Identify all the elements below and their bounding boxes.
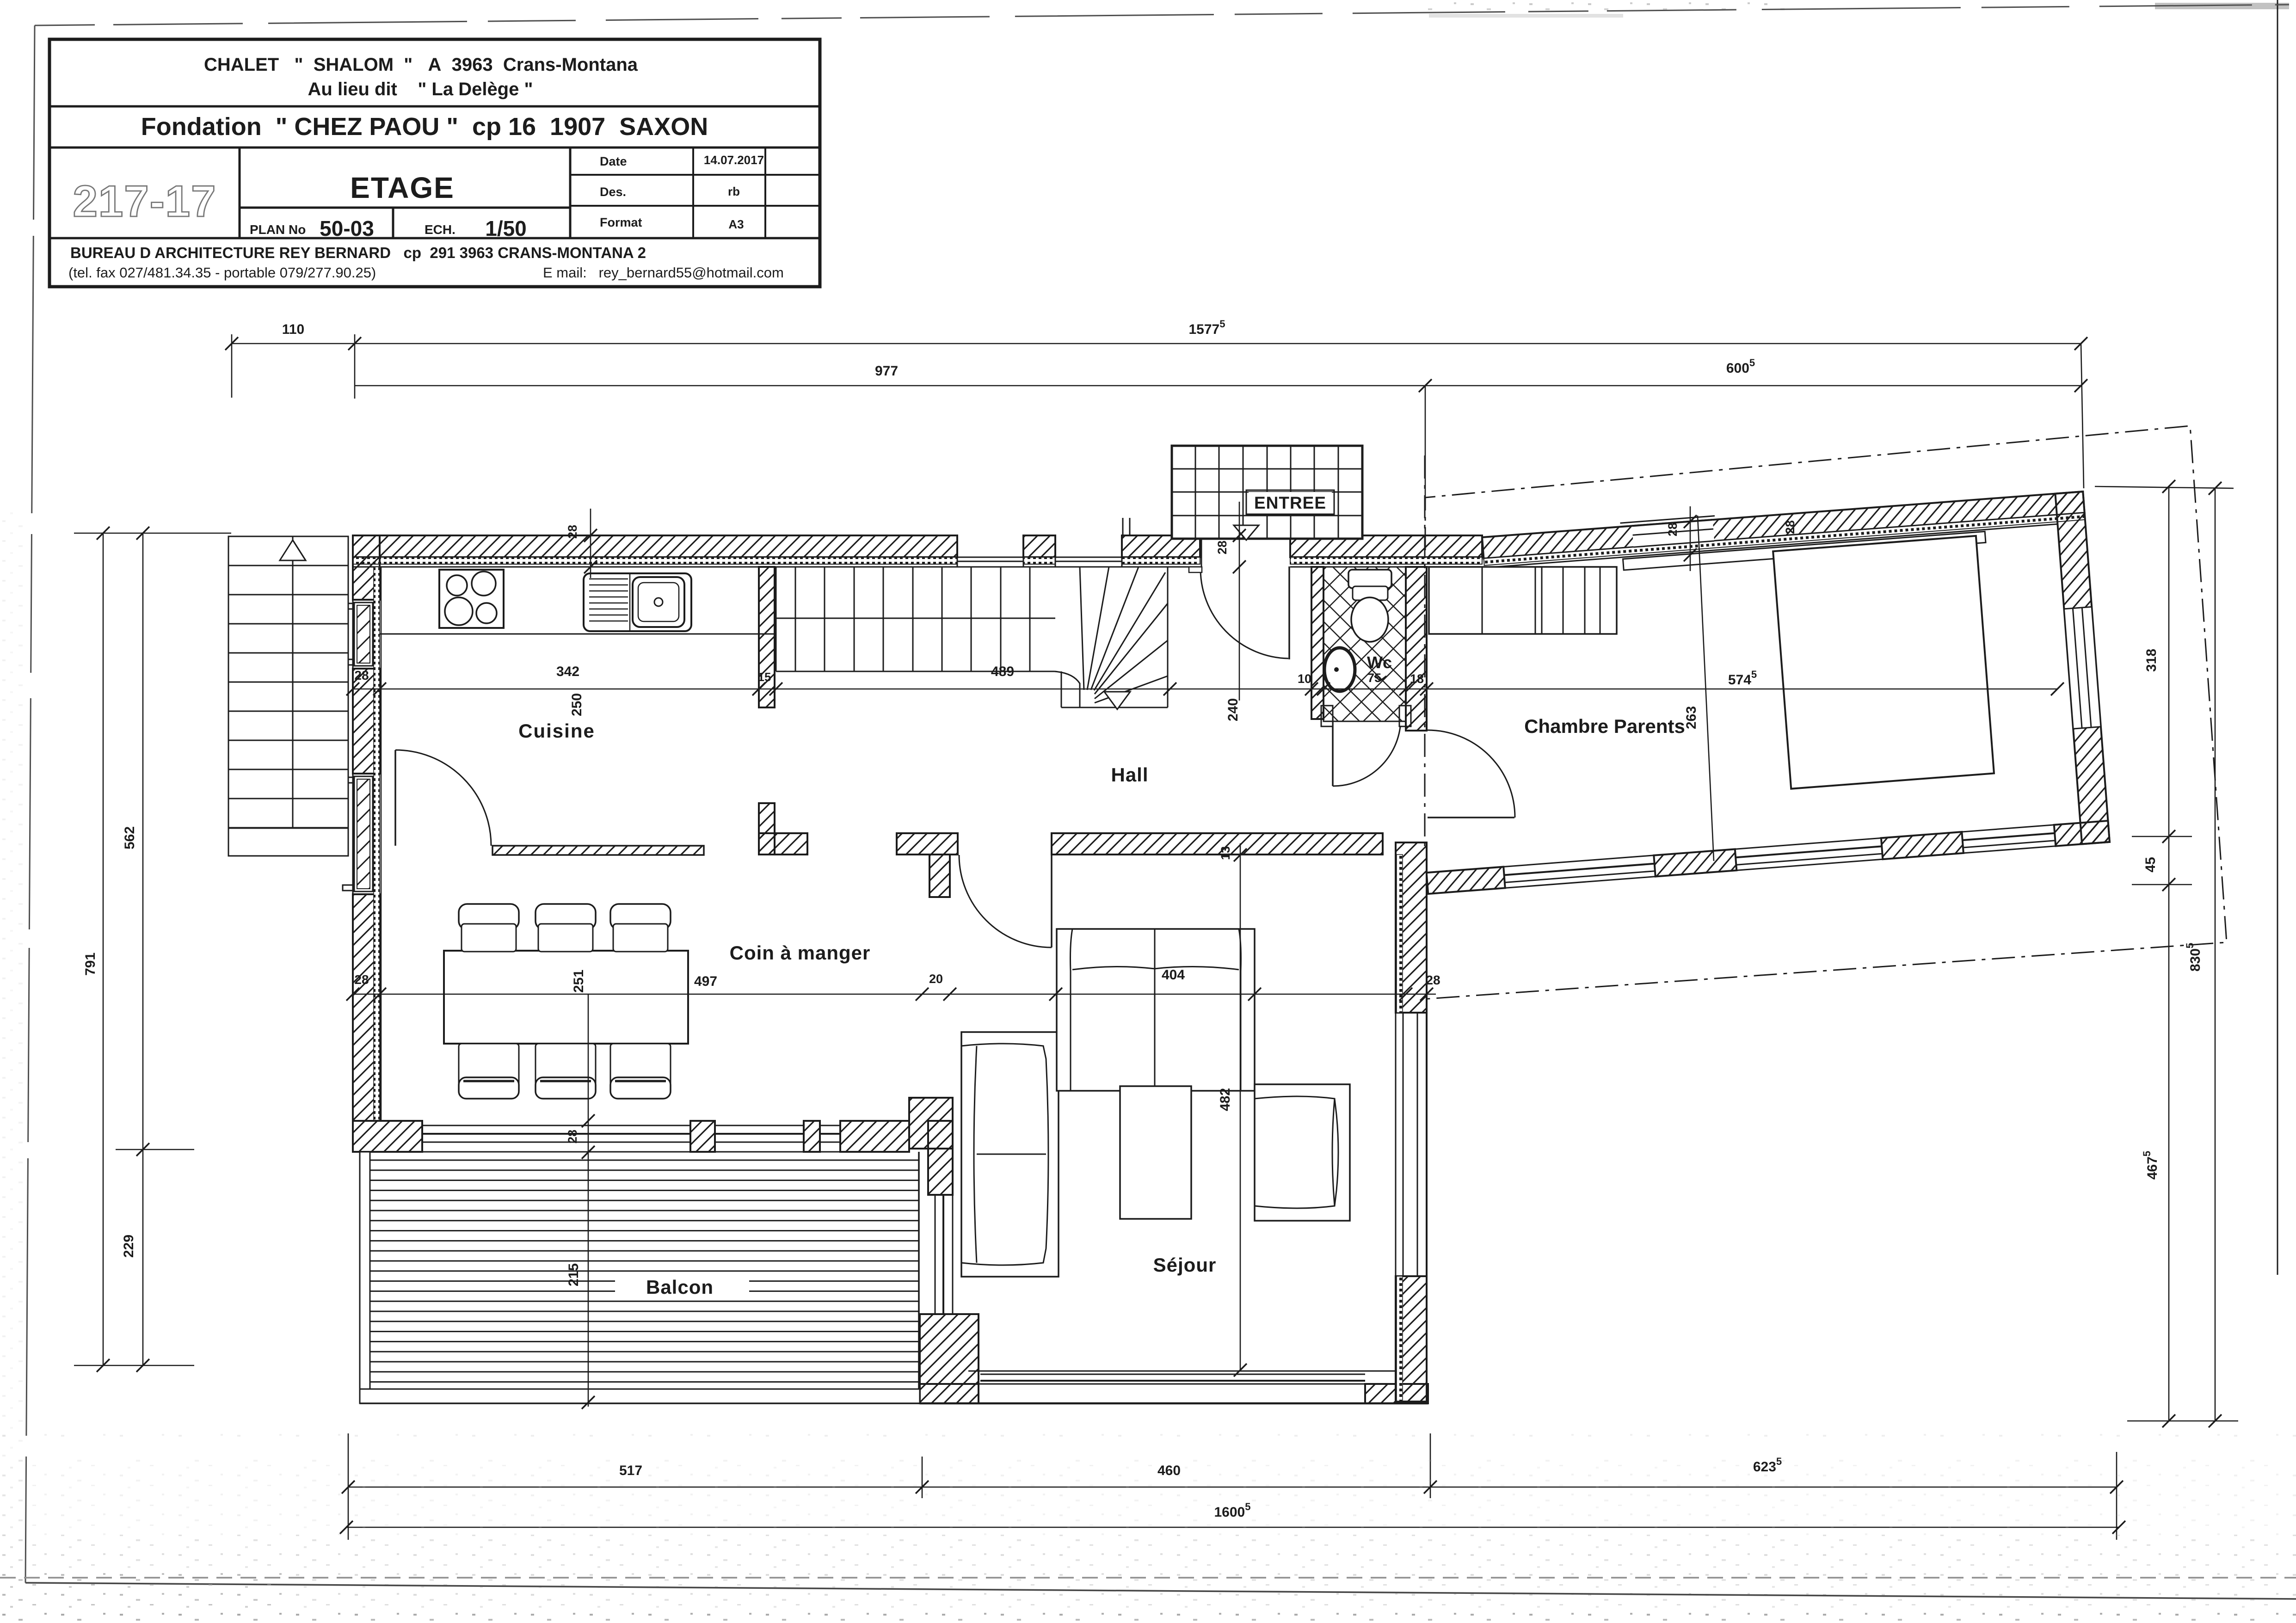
svg-text:110: 110 (282, 322, 304, 337)
svg-text:489: 489 (991, 664, 1014, 679)
svg-text:28: 28 (566, 1130, 579, 1143)
svg-text:10: 10 (1298, 672, 1311, 686)
svg-text:50-03: 50-03 (320, 216, 374, 240)
svg-text:250: 250 (569, 693, 585, 716)
svg-text:251: 251 (571, 970, 586, 993)
svg-text:1/50: 1/50 (485, 216, 527, 240)
svg-text:562: 562 (122, 826, 137, 849)
svg-text:Cuisine: Cuisine (518, 720, 595, 742)
svg-text:Wc: Wc (1367, 653, 1392, 672)
svg-text:18: 18 (1410, 672, 1424, 686)
svg-text:Chambre Parents: Chambre Parents (1524, 715, 1685, 737)
svg-text:28: 28 (1666, 523, 1680, 536)
svg-text:791: 791 (83, 953, 98, 976)
svg-text:28: 28 (1783, 520, 1797, 534)
svg-text:13: 13 (1219, 846, 1232, 860)
svg-text:20: 20 (929, 972, 943, 986)
svg-text:482: 482 (1218, 1088, 1233, 1111)
svg-text:318: 318 (2144, 649, 2159, 672)
svg-text:Coin à manger: Coin à manger (730, 942, 871, 964)
svg-text:E mail: rey_bernard55@hotmai: E mail: rey_bernard55@hotmail.com (543, 264, 784, 281)
svg-text:Séjour: Séjour (1153, 1254, 1217, 1276)
svg-text:A3: A3 (728, 217, 744, 231)
svg-text:28: 28 (1215, 541, 1229, 554)
svg-text:404: 404 (1162, 967, 1185, 983)
svg-text:217-17: 217-17 (73, 177, 217, 226)
svg-text:15: 15 (758, 670, 771, 684)
svg-text:ECH.: ECH. (425, 222, 456, 237)
svg-text:215: 215 (566, 1263, 581, 1286)
svg-text:14.07.2017: 14.07.2017 (704, 153, 764, 167)
svg-text:Des.: Des. (600, 185, 626, 199)
svg-text:PLAN No: PLAN No (250, 222, 306, 237)
svg-text:ENTREE: ENTREE (1254, 493, 1326, 512)
svg-text:Balcon: Balcon (646, 1276, 714, 1298)
svg-text:263: 263 (1684, 706, 1699, 729)
svg-text:Fondation " CHEZ PAOU " cp 1: Fondation " CHEZ PAOU " cp 16 1907 SAXON (141, 113, 708, 141)
svg-text:28: 28 (354, 668, 369, 682)
svg-text:Hall: Hall (1111, 764, 1148, 786)
svg-text:CHALET " SHALOM " A 396: CHALET " SHALOM " A 3963 Crans-Montana (204, 55, 638, 75)
svg-text:rb: rb (728, 184, 740, 198)
svg-text:75: 75 (1367, 671, 1381, 685)
svg-text:45: 45 (2143, 857, 2158, 872)
svg-text:342: 342 (556, 664, 579, 679)
svg-text:Format: Format (600, 215, 642, 229)
svg-text:229: 229 (121, 1235, 136, 1258)
svg-text:28: 28 (1426, 973, 1440, 987)
svg-text:BUREAU D ARCHITECTURE REY BERN: BUREAU D ARCHITECTURE REY BERNARD cp 291… (70, 244, 646, 261)
svg-text:28: 28 (566, 525, 579, 539)
svg-text:28: 28 (354, 972, 369, 987)
svg-text:497: 497 (694, 974, 717, 989)
svg-text:977: 977 (875, 363, 898, 379)
svg-text:ETAGE: ETAGE (350, 171, 455, 204)
svg-text:Au lieu dit " La Delège ": Au lieu dit " La Delège " (308, 79, 533, 99)
svg-text:240: 240 (1225, 698, 1241, 721)
svg-text:Date: Date (600, 154, 627, 168)
svg-text:(tel. fax 027/481.34.35 - port: (tel. fax 027/481.34.35 - portable 079/2… (68, 264, 376, 281)
